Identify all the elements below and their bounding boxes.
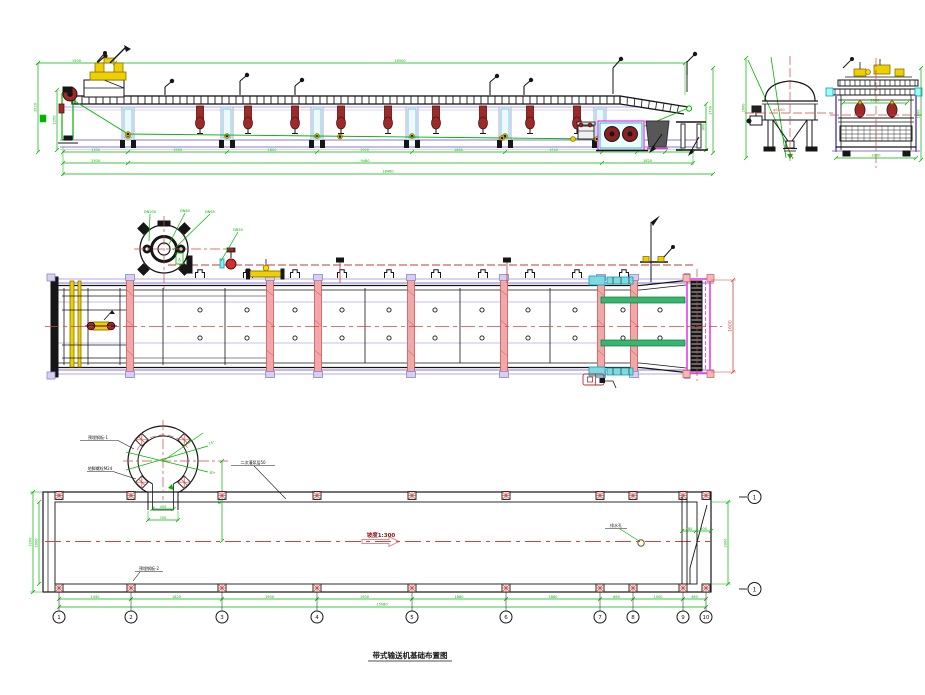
tail-pulley <box>58 87 78 143</box>
panel-holes <box>480 308 484 312</box>
spray-levers <box>240 76 246 81</box>
cross-members <box>315 278 322 374</box>
side-elevation-view: 1500165001520125017009001300198018001900… <box>34 45 716 176</box>
discharge-chute <box>697 124 701 148</box>
feed-pipe <box>226 259 236 269</box>
foundation-leader-labels <box>133 572 140 581</box>
feed-pipe <box>337 258 344 262</box>
belt <box>656 102 657 109</box>
grid-bubbles: 7 <box>598 615 602 621</box>
feed-pipe <box>672 246 675 249</box>
drive-unit <box>588 123 592 127</box>
panel-holes <box>480 336 484 340</box>
ring-opening: 15° <box>208 440 215 446</box>
end-view-filtrate-tank <box>752 106 761 112</box>
bottom-dimensions: 460 <box>691 595 698 599</box>
panel-holes <box>433 308 437 312</box>
plan-frame <box>640 285 686 290</box>
foundation-leader-labels <box>620 529 639 541</box>
elevation-dimensions: 1500 <box>72 59 81 63</box>
panel-holes <box>658 308 662 312</box>
head-drum <box>691 281 702 371</box>
support-legs <box>120 140 125 148</box>
section-marker-top-label: 1 <box>753 494 757 501</box>
vacuum-drops <box>291 117 300 129</box>
bottom-dimensions: 660 <box>613 595 620 599</box>
panel-holes <box>387 336 391 340</box>
panel-holes <box>658 336 662 340</box>
panel-holes <box>387 308 391 312</box>
cable-line <box>339 136 341 138</box>
cross-members <box>126 372 135 378</box>
tail-pulley <box>59 104 64 113</box>
spray-nozzles <box>291 270 300 278</box>
panel-holes <box>526 308 530 312</box>
spray-nozzles <box>338 270 347 278</box>
belt <box>663 103 664 110</box>
spray-levers <box>524 81 530 86</box>
foundation-leader-labels: 预埋钢板-2 <box>139 565 159 571</box>
end-view-inner-width-label: 1500 <box>871 99 880 103</box>
feed-pipe <box>643 257 649 262</box>
spray-levers <box>165 82 171 87</box>
spray-levers <box>300 78 303 81</box>
end-view-machine: 1800 <box>826 58 923 169</box>
foundation-leader-labels: 二次灌浆层50 <box>240 459 266 465</box>
section-marker-bottom-label: 1 <box>753 586 757 593</box>
elevation-dimensions: 1820 <box>643 159 652 163</box>
anchor-pad <box>178 433 191 446</box>
cable-line <box>501 137 503 139</box>
end-view-machine: 1800 <box>917 110 921 119</box>
panel-holes <box>526 336 530 340</box>
bottom-dimensions: 1440 <box>91 595 100 599</box>
foundation-right-end <box>690 505 707 584</box>
cross-members <box>126 275 135 281</box>
grease-box <box>588 377 593 382</box>
support-legs <box>497 140 502 148</box>
support-legs <box>404 140 409 148</box>
plan-view: DN200DN80DN65DN50 <box>45 209 736 388</box>
plan-leader-labels: DN50 <box>233 228 243 232</box>
feed-pipe <box>664 248 672 257</box>
end-view-filtrate-tank: 2600 <box>742 56 834 162</box>
grid-bubbles: 2 <box>129 615 133 621</box>
tank-diameter-label: φ1200 <box>773 108 784 112</box>
discharge-chute <box>681 124 685 148</box>
foundation-dimensions: 700 <box>160 516 167 520</box>
feed-assembly <box>110 47 126 63</box>
foundation-leader-labels: 预埋钢板-1 <box>88 434 108 440</box>
spray-levers <box>495 74 498 77</box>
feed-pipe <box>247 269 250 279</box>
panel-holes <box>198 336 202 340</box>
head-section <box>601 340 685 346</box>
grid-bubbles: 6 <box>504 615 508 621</box>
cross-members <box>266 372 275 378</box>
panel-holes <box>433 336 437 340</box>
grid-bubbles: 9 <box>681 615 685 621</box>
feed-flange <box>134 216 233 291</box>
elevation-dimensions: 1250 <box>53 116 57 125</box>
head-drum <box>676 269 736 381</box>
cross-members <box>408 278 415 374</box>
panel-holes <box>573 336 577 340</box>
foundation-right-end: 280 <box>686 527 693 531</box>
support-legs <box>504 135 506 137</box>
spray-nozzles <box>573 270 582 278</box>
panel-holes <box>340 336 344 340</box>
plan-frame <box>47 274 714 379</box>
drawing-labels: 带式输送机基础布置图 坡度1:300 1 1 1600 φ1200 1500 2… <box>178 99 880 662</box>
elevation-dimensions <box>40 115 46 122</box>
top-fittings <box>895 69 904 76</box>
feed-assembly <box>84 45 131 97</box>
spray-levers <box>165 52 697 95</box>
foundation-leader-labels <box>113 472 136 480</box>
bottom-dimensions: 1900 <box>265 595 274 599</box>
feed-pipe <box>250 271 281 277</box>
cross-members <box>631 278 638 374</box>
detail-tag-label: A <box>178 258 181 263</box>
elevation-dimensions: 1700 <box>709 106 713 115</box>
vacuum-drops <box>432 117 441 129</box>
cross-members <box>127 278 134 374</box>
spray-nozzles <box>196 270 205 278</box>
spray-levers <box>529 78 532 81</box>
tail-pulley <box>63 87 72 92</box>
end-view-filtrate-tank: 2600 <box>742 104 746 113</box>
feed-pipe <box>504 258 511 262</box>
vacuum-drops <box>384 117 393 129</box>
plan-frame <box>640 363 686 368</box>
panel-holes <box>340 308 344 312</box>
support-legs <box>219 140 224 148</box>
vacuum-drops <box>244 117 253 129</box>
head-section <box>589 276 605 285</box>
head-drum <box>707 275 714 282</box>
tail-pulley <box>64 136 72 140</box>
feed-pipe <box>220 259 224 268</box>
feed-pipe <box>658 257 664 262</box>
feed-assembly <box>95 63 104 72</box>
end-view-outer-width-label: 2200 <box>872 154 881 158</box>
spray-levers <box>693 52 696 55</box>
feed-pipe <box>651 216 660 227</box>
cad-drawing: 1500165001520125017009001300198018001900… <box>0 0 925 695</box>
plan-frame <box>47 372 55 379</box>
vacuum-drops <box>479 117 488 129</box>
feed-assembly <box>104 52 107 55</box>
drive-unit <box>628 132 632 136</box>
feed-pipe <box>263 265 269 271</box>
top-fittings <box>874 65 890 74</box>
anchor-pad <box>178 476 191 489</box>
grid-bubbles: 8 <box>631 615 635 621</box>
plan-leader-labels <box>149 214 150 241</box>
head-drum <box>683 275 690 282</box>
feed-pipe <box>281 269 284 279</box>
cross-members <box>501 278 508 374</box>
support-legs <box>230 140 235 148</box>
feed-assembly <box>90 72 126 80</box>
elevation-overall-dim-label: 18460 <box>382 170 393 174</box>
tail-drive <box>85 310 117 330</box>
spray-levers <box>619 57 622 60</box>
grid-bubbles: 3 <box>220 615 224 621</box>
cross-members <box>314 275 323 281</box>
end-view-filtrate-tank <box>750 116 762 125</box>
foundation-dimensions: 400 <box>160 505 167 509</box>
vacuum-drops <box>337 117 346 129</box>
spray-nozzles <box>479 270 488 278</box>
support-legs <box>415 140 420 148</box>
head-section <box>601 297 685 303</box>
support-legs <box>508 140 513 148</box>
drive-unit <box>578 126 594 139</box>
anchor-pad <box>135 433 148 446</box>
foundation-leader-labels: 排水孔 <box>610 522 622 528</box>
end-view-filtrate-tank <box>792 120 807 141</box>
belt <box>686 106 691 111</box>
top-fittings <box>843 58 912 78</box>
cross-members <box>267 278 274 374</box>
discharge-chute <box>646 121 669 147</box>
spray-nozzles <box>526 270 535 278</box>
panel-holes <box>621 308 625 312</box>
end-view-machine <box>903 151 910 156</box>
belt <box>641 100 642 108</box>
feed-assembly <box>124 45 131 52</box>
foundation-right-end: 300 <box>700 527 707 531</box>
support-legs <box>131 140 136 148</box>
drive-unit <box>571 121 648 151</box>
drive-unit <box>579 123 583 127</box>
spray-levers <box>170 79 173 82</box>
belt <box>648 101 649 109</box>
head-drum <box>707 371 714 378</box>
panel-holes <box>245 336 249 340</box>
vacuum-drops <box>526 117 535 129</box>
support-legs <box>120 107 608 148</box>
spray-nozzles <box>385 270 394 278</box>
top-fittings <box>854 69 866 76</box>
grid-bubbles: 1 <box>57 615 61 621</box>
panel-holes <box>573 308 577 312</box>
cross-members <box>500 372 509 378</box>
cross-members <box>598 278 605 374</box>
bottom-dimensions: 1820 <box>172 595 181 599</box>
panel-holes <box>293 308 297 312</box>
spray-levers <box>613 60 620 68</box>
elevation-dimensions: 9480 <box>361 159 370 163</box>
tail-drive <box>104 311 112 320</box>
plan-leader-labels <box>221 232 238 261</box>
cross-members <box>407 275 416 281</box>
vacuum-drops <box>196 117 205 129</box>
plan-leader-labels: DN200 <box>144 210 156 214</box>
section-markers <box>739 491 761 596</box>
belt <box>72 96 620 104</box>
panel-holes <box>245 308 249 312</box>
bottom-dimensions: 1880 <box>549 595 558 599</box>
spray-nozzles <box>432 270 441 278</box>
end-view-machine <box>843 151 850 156</box>
feed-assembly <box>84 80 124 97</box>
drum-width-dim-label: 1600 <box>728 320 734 332</box>
belt <box>670 105 672 112</box>
bottom-dimensions: 1880 <box>455 595 464 599</box>
cross-members <box>407 372 416 378</box>
cross-members <box>314 372 323 378</box>
grid-bubbles: 4 <box>315 615 319 621</box>
elevation-dimensions: 16500 <box>394 59 405 63</box>
anchor-pad <box>135 476 148 489</box>
plan-leader-labels: DN80 <box>180 209 190 213</box>
grease-box <box>604 381 616 388</box>
foundation-leader-labels <box>638 540 644 546</box>
ring-opening: 30° <box>209 470 216 475</box>
end-view-filtrate-tank <box>764 147 775 151</box>
ring-opening: 15°30° <box>123 420 228 510</box>
end-view-machine <box>826 88 833 96</box>
bottom-dimensions: 2000 <box>35 539 39 548</box>
end-view-filtrate-tank <box>806 147 817 151</box>
support-legs <box>320 140 325 148</box>
foundation-leader-labels: 地脚螺栓M24 <box>88 465 113 471</box>
head-section <box>589 367 605 376</box>
plan-leader-labels: DN65 <box>205 210 215 214</box>
panel-holes <box>198 308 202 312</box>
support-legs <box>309 140 314 148</box>
end-view-machine <box>828 89 920 95</box>
belt <box>620 104 684 114</box>
plan-frame <box>78 281 81 367</box>
elevation-dimensions: 900 <box>702 124 706 131</box>
elevation-dimensions: 1520 <box>34 103 38 112</box>
foundation-right-end: 2000 <box>724 539 728 548</box>
slope-label: 坡度1:300 <box>367 531 396 539</box>
top-fittings <box>843 60 851 68</box>
cable-line <box>127 133 129 135</box>
top-fittings <box>851 58 854 61</box>
top-fittings <box>866 70 871 75</box>
drive-unit <box>571 137 576 142</box>
grease-box <box>600 379 605 383</box>
bottom-dimensions: 1000 <box>654 595 663 599</box>
spray-levers <box>245 73 248 76</box>
plan-leader-labels <box>173 214 210 250</box>
panel-holes <box>293 336 297 340</box>
spray-levers <box>490 77 496 82</box>
foundation-overall-dim-label: 15080 <box>376 603 387 607</box>
spray-levers <box>687 55 694 62</box>
grid-bubbles: 5 <box>410 615 414 621</box>
plan-frame <box>70 281 74 367</box>
bottom-dimensions: 2200 <box>29 538 33 547</box>
bottom-dimensions: 1900 <box>360 595 369 599</box>
plan-frame <box>51 277 58 377</box>
spray-levers <box>295 81 301 86</box>
drawing-title: 带式输送机基础布置图 <box>373 650 448 660</box>
foundation-plan-view: 15°30°800400700预埋钢板-1地脚螺栓M24二次灌浆层50预埋钢板-… <box>29 420 762 623</box>
head-drum <box>683 371 690 378</box>
panel-holes <box>621 336 625 340</box>
cad-drawing-canvas: 1500165001520125017009001300198018001900… <box>0 0 925 695</box>
elevation-dimensions: 1300 <box>91 159 100 163</box>
ring-opening <box>168 484 174 490</box>
plan-frame <box>47 274 55 281</box>
end-view-machine <box>891 101 894 104</box>
foundation-leader-labels <box>254 466 286 499</box>
end-view-machine <box>859 101 862 104</box>
drive-unit <box>610 132 614 136</box>
end-view-filtrate-tank <box>747 119 751 123</box>
feed-assembly <box>114 63 123 72</box>
grid-bubbles: 10 <box>703 615 710 621</box>
